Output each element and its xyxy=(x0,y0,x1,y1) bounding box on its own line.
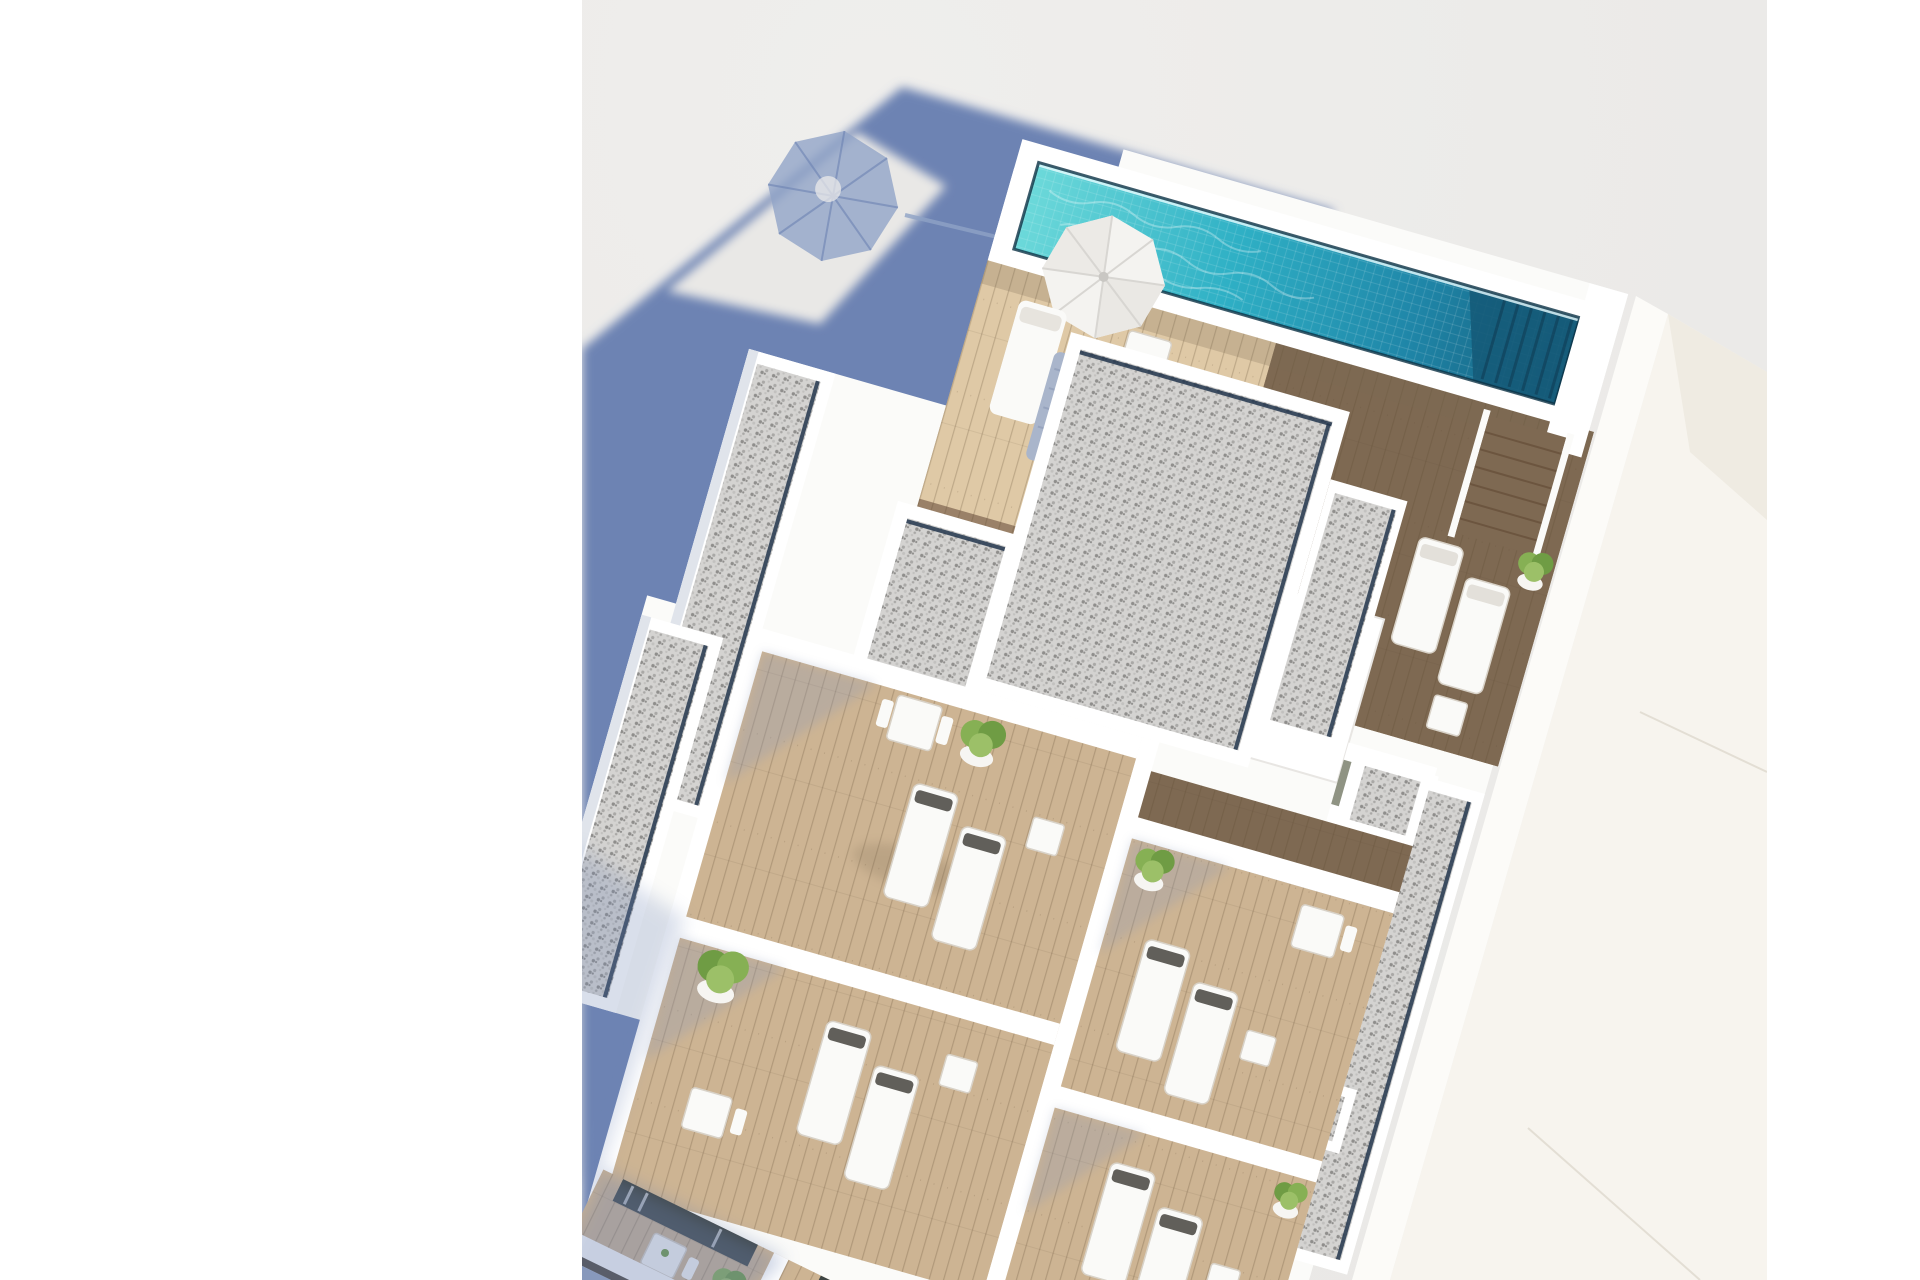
aerial-render: Aerial 3D architectural render — apartme… xyxy=(0,0,1920,1280)
render-canvas: Aerial 3D architectural render — apartme… xyxy=(0,0,1920,1280)
